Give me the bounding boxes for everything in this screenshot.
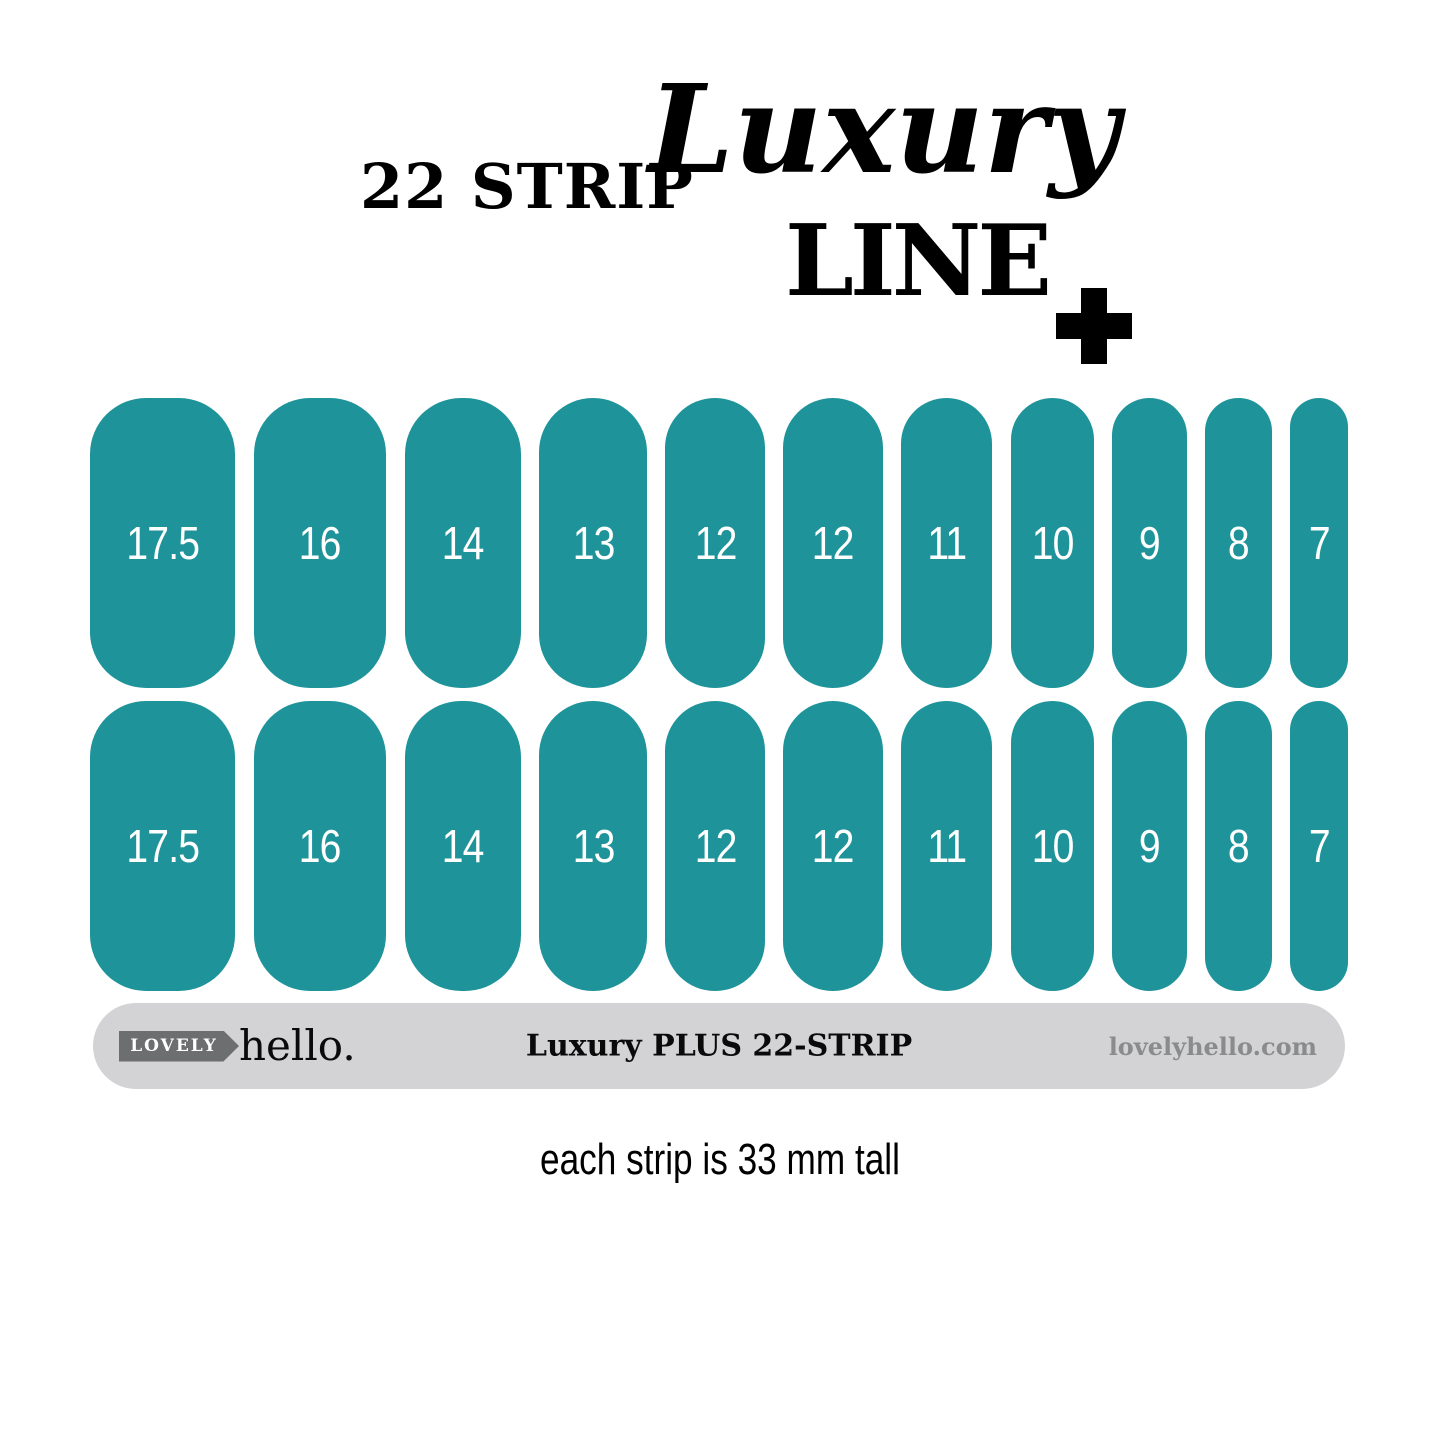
lovely-badge-label: LOVELY (130, 1038, 218, 1055)
strip-size-label: 8 (1228, 823, 1249, 869)
nail-strip-size-12: 12 (665, 398, 765, 688)
strip-size-label: 7 (1308, 520, 1329, 566)
website-text: lovelyhello.com (1109, 1032, 1317, 1061)
nail-strip-size-17.5: 17.5 (90, 398, 235, 688)
nail-strip-size-13: 13 (539, 398, 647, 688)
strip-size-label: 16 (299, 823, 341, 869)
nail-strip-size-10: 10 (1011, 398, 1094, 688)
nail-strip-size-11: 11 (901, 398, 992, 688)
lovely-hello-logo: LOVELY hello. (119, 1025, 356, 1067)
nail-strip-size-8: 8 (1205, 701, 1271, 991)
plus-icon-horizontal-bar (1056, 313, 1132, 339)
strip-size-label: 14 (442, 520, 484, 566)
strip-size-label: 14 (442, 823, 484, 869)
strip-size-label: 9 (1139, 520, 1160, 566)
caption: each strip is 33 mm tall (0, 1138, 1440, 1182)
strip-row-2: 17.516141312121110987 (90, 701, 1348, 991)
product-label: Luxury PLUS 22-STRIP (526, 1029, 912, 1064)
nail-strip-size-17.5: 17.5 (90, 701, 235, 991)
nail-strip-size-12: 12 (783, 701, 883, 991)
nail-strip-size-7: 7 (1290, 398, 1348, 688)
strip-row-1: 17.516141312121110987 (90, 398, 1348, 688)
strip-size-label: 16 (299, 520, 341, 566)
logo-name: hello. (239, 1025, 356, 1067)
title-brand-script: Luxury (648, 68, 1119, 190)
nail-strip-size-11: 11 (901, 701, 992, 991)
lovely-badge-icon: LOVELY (119, 1031, 239, 1062)
nail-strip-size-13: 13 (539, 701, 647, 991)
plus-icon (1056, 288, 1132, 364)
title-strip-count: 22 STRIP (360, 156, 694, 218)
nail-strip-size-14: 14 (405, 398, 521, 688)
nail-strip-size-9: 9 (1112, 398, 1187, 688)
strip-size-label: 12 (812, 520, 854, 566)
nail-strip-size-7: 7 (1290, 701, 1348, 991)
nail-strip-size-12: 12 (783, 398, 883, 688)
footer-bar: LOVELY hello. Luxury PLUS 22-STRIP lovel… (93, 1003, 1345, 1089)
nail-strip-size-10: 10 (1011, 701, 1094, 991)
nail-strip-size-8: 8 (1205, 398, 1271, 688)
strip-size-label: 12 (812, 823, 854, 869)
nail-strip-size-16: 16 (254, 398, 387, 688)
strip-size-label: 8 (1228, 520, 1249, 566)
strip-size-label: 11 (927, 823, 966, 869)
strip-size-label: 12 (694, 520, 736, 566)
strip-size-label: 7 (1308, 823, 1329, 869)
title-line-label: LINE (785, 213, 1048, 311)
caption-text: each strip is 33 mm tall (540, 1138, 900, 1182)
product-sizing-sheet: 22 STRIP Luxury LINE 17.5161413121211109… (0, 0, 1440, 1440)
nail-strip-size-16: 16 (254, 701, 387, 991)
strip-size-label: 13 (572, 520, 614, 566)
strip-size-label: 17.5 (126, 823, 199, 869)
nail-strip-size-14: 14 (405, 701, 521, 991)
nail-strip-size-12: 12 (665, 701, 765, 991)
strip-size-label: 12 (694, 823, 736, 869)
strip-size-label: 17.5 (126, 520, 199, 566)
strip-size-label: 13 (572, 823, 614, 869)
strip-size-label: 10 (1031, 823, 1073, 869)
strip-size-label: 11 (927, 520, 966, 566)
nail-strip-size-9: 9 (1112, 701, 1187, 991)
strip-size-label: 10 (1031, 520, 1073, 566)
strip-size-label: 9 (1139, 823, 1160, 869)
